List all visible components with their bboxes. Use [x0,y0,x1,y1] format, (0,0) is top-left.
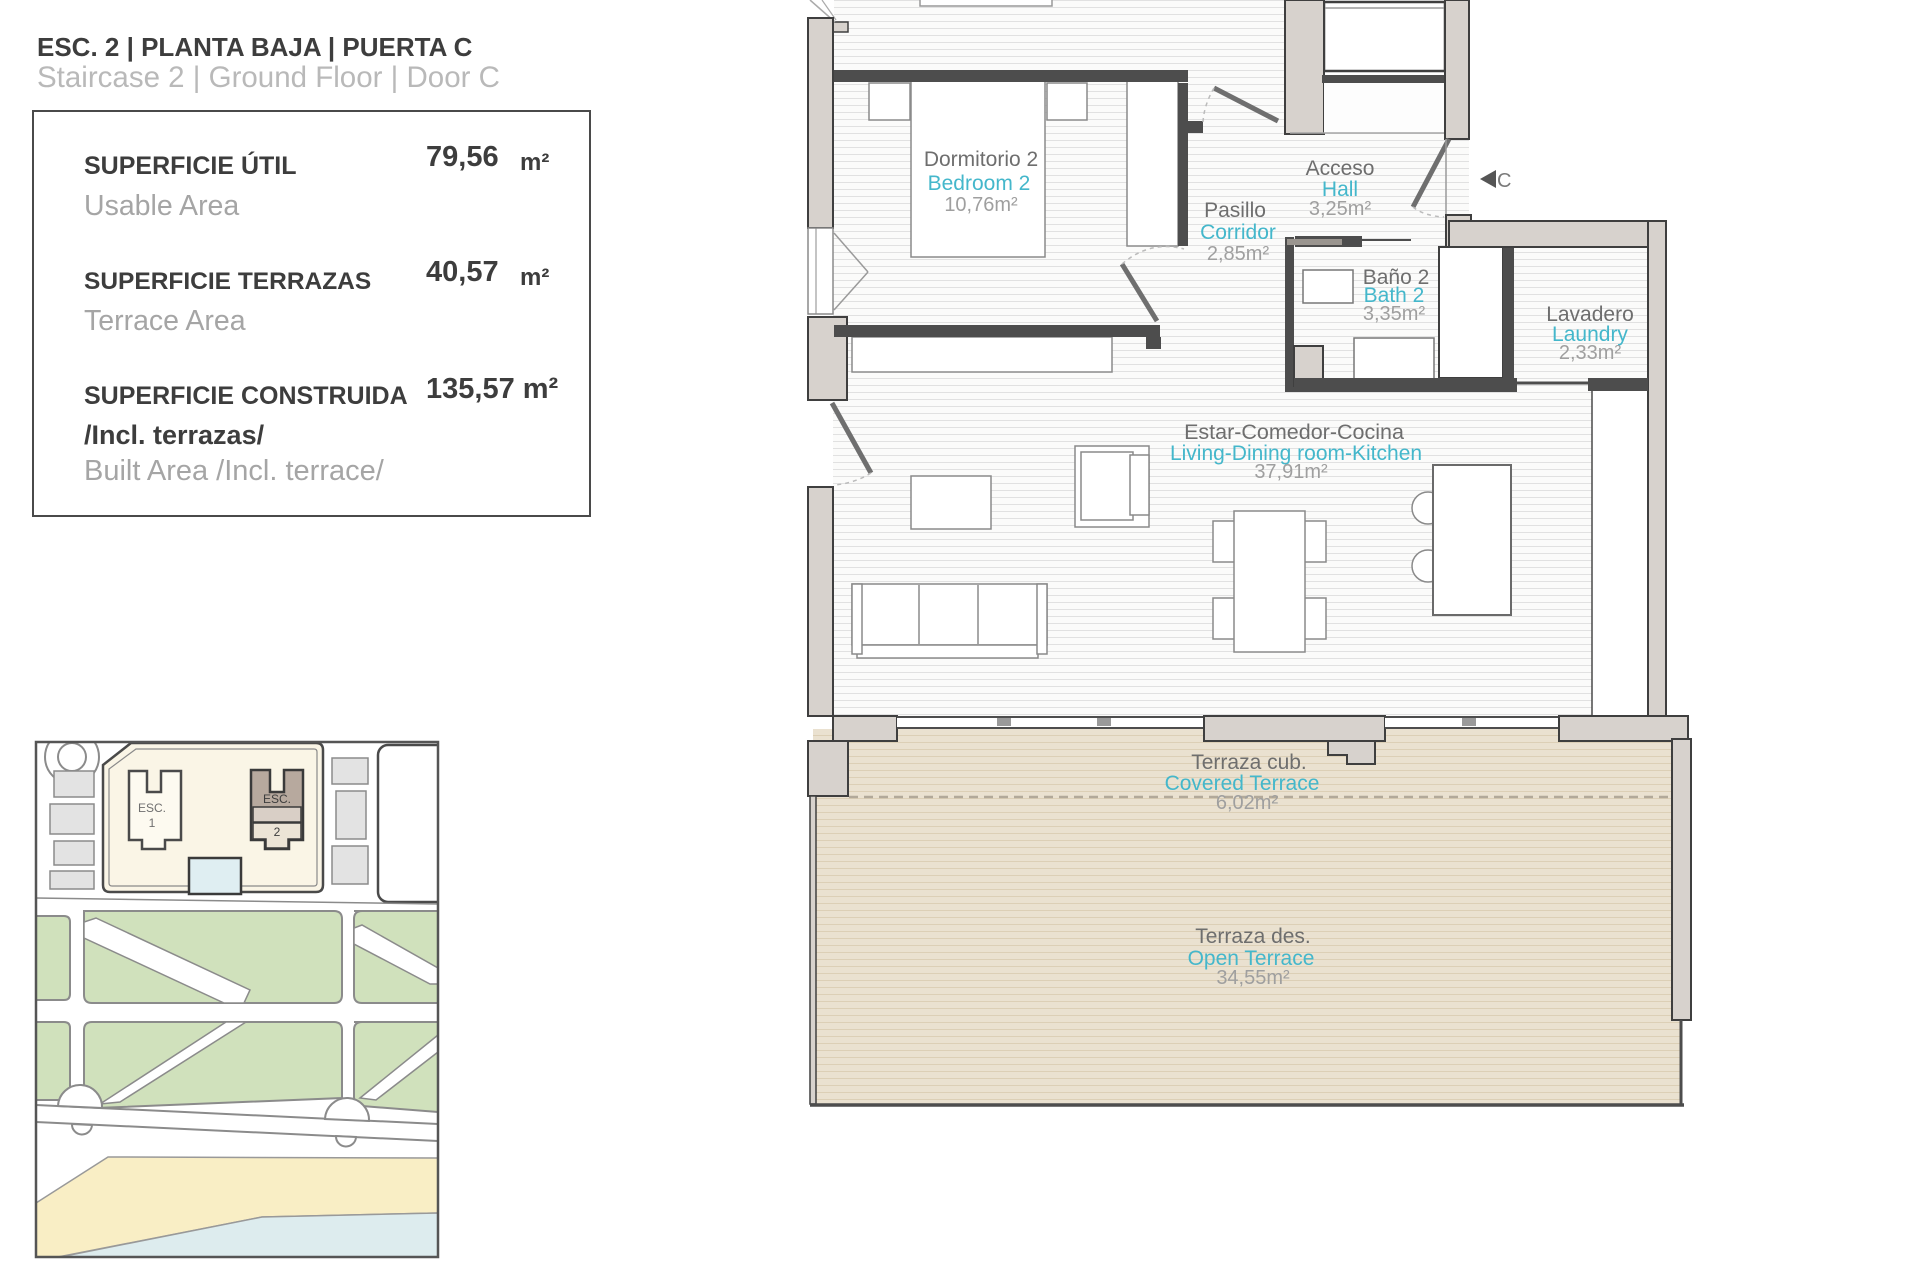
svg-text:Corridor: Corridor [1200,221,1276,244]
svg-text:/Incl. terrazas/: /Incl. terrazas/ [84,420,265,450]
svg-text:Dormitorio 2: Dormitorio 2 [924,148,1038,171]
svg-text:1: 1 [149,816,156,830]
svg-text:SUPERFICIE CONSTRUIDA: SUPERFICIE CONSTRUIDA [84,382,408,410]
svg-text:ESC.: ESC. [263,792,291,806]
svg-text:135,57 m²: 135,57 m² [426,373,559,405]
svg-text:ESC. 2 | PLANTA BAJA | PUERTA: ESC. 2 | PLANTA BAJA | PUERTA C [37,32,473,62]
svg-text:34,55m²: 34,55m² [1216,967,1290,989]
svg-text:40,57: 40,57 [426,256,499,288]
svg-text:Terraza des.: Terraza des. [1195,925,1311,948]
svg-text:Pasillo: Pasillo [1204,199,1266,222]
svg-text:2: 2 [274,825,281,839]
svg-text:SUPERFICIE ÚTIL: SUPERFICIE ÚTIL [84,150,297,180]
svg-text:m²: m² [520,264,549,291]
svg-text:6,02m²: 6,02m² [1216,792,1279,814]
svg-text:37,91m²: 37,91m² [1254,461,1328,483]
svg-text:Bedroom 2: Bedroom 2 [928,172,1031,195]
svg-text:10,76m²: 10,76m² [944,194,1018,216]
svg-text:Acceso: Acceso [1306,157,1375,180]
svg-text:3,25m²: 3,25m² [1309,198,1372,220]
svg-text:2,85m²: 2,85m² [1207,243,1270,265]
svg-text:Built Area /Incl. terrace/: Built Area /Incl. terrace/ [84,455,385,487]
svg-text:3,35m²: 3,35m² [1363,303,1426,325]
svg-text:Terrace Area: Terrace Area [84,305,246,337]
svg-text:Usable Area: Usable Area [84,190,239,222]
svg-text:C: C [1497,170,1511,192]
svg-text:m²: m² [520,149,549,176]
svg-text:Terraza cub.: Terraza cub. [1191,751,1307,774]
svg-text:Estar-Comedor-Cocina: Estar-Comedor-Cocina [1184,420,1404,444]
svg-text:ESC.: ESC. [138,801,166,815]
svg-text:79,56: 79,56 [426,141,499,173]
svg-text:Staircase 2 | Ground Floor | D: Staircase 2 | Ground Floor | Door C [37,61,500,94]
svg-text:2,33m²: 2,33m² [1559,342,1622,364]
svg-text:SUPERFICIE TERRAZAS: SUPERFICIE TERRAZAS [84,268,371,295]
